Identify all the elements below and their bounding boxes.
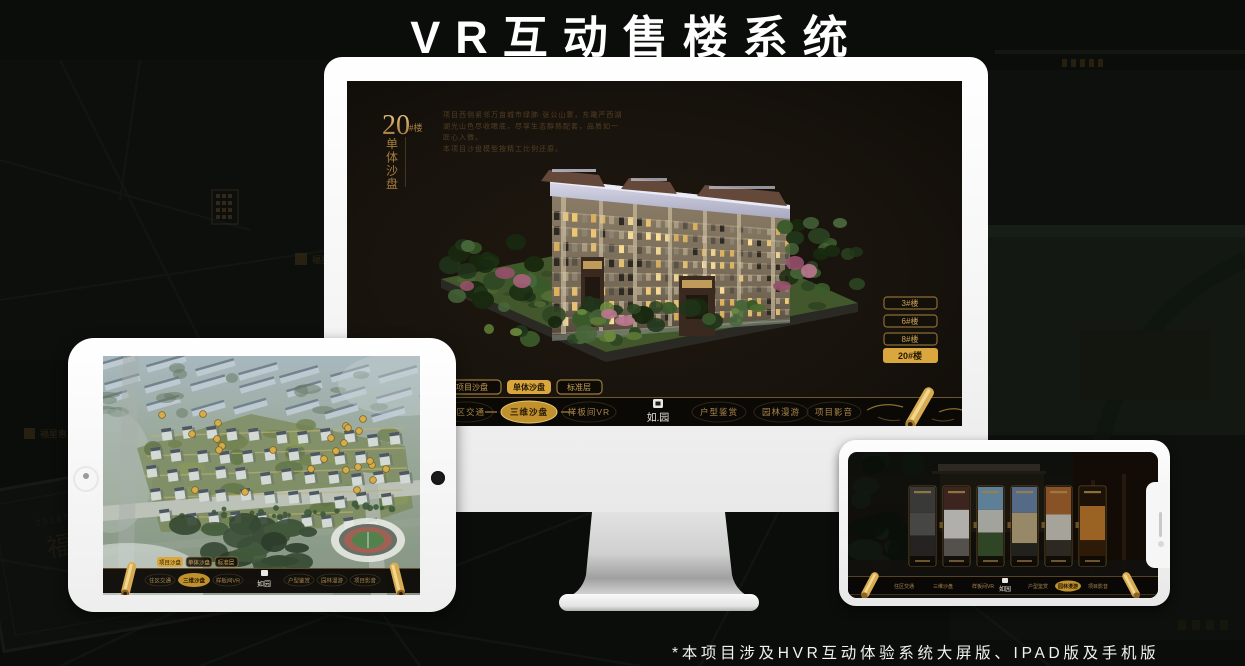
svg-text:园林漫游: 园林漫游 <box>321 577 344 585</box>
svg-text:住区交通: 住区交通 <box>149 577 172 585</box>
svg-text:样板间VR: 样板间VR <box>972 583 994 590</box>
svg-text:项目西侧紧邻万亩城市绿肺·张公山寨，东瞰严西湖: 项目西侧紧邻万亩城市绿肺·张公山寨，东瞰严西湖 <box>443 110 622 119</box>
svg-text:标准层: 标准层 <box>218 559 235 567</box>
svg-text:沙: 沙 <box>386 164 398 178</box>
svg-text:园林漫游: 园林漫游 <box>1058 583 1078 590</box>
svg-text:项目影音: 项目影音 <box>1088 583 1108 590</box>
svg-text:户型鉴赏: 户型鉴赏 <box>288 577 311 585</box>
svg-text:#楼: #楼 <box>409 122 423 133</box>
svg-text:三维沙盘: 三维沙盘 <box>933 583 953 590</box>
svg-text:体: 体 <box>386 150 398 164</box>
svg-text:单体沙盘: 单体沙盘 <box>513 382 545 392</box>
svg-text:项目影音: 项目影音 <box>815 407 853 417</box>
svg-text:6#楼: 6#楼 <box>902 316 919 326</box>
svg-text:单: 单 <box>386 137 398 151</box>
svg-text:标准层: 标准层 <box>567 382 591 392</box>
svg-text:户型鉴赏: 户型鉴赏 <box>700 407 738 417</box>
svg-text:如园: 如园 <box>999 585 1011 593</box>
svg-text:项目沙盘: 项目沙盘 <box>456 382 488 392</box>
svg-text:户型鉴赏: 户型鉴赏 <box>1028 583 1048 590</box>
svg-text:三维沙盘: 三维沙盘 <box>510 407 548 417</box>
svg-text:本项目沙盘模型按精工比例还原。: 本项目沙盘模型按精工比例还原。 <box>443 144 563 153</box>
svg-text:盘: 盘 <box>386 176 398 191</box>
svg-text:样板间VR: 样板间VR <box>216 577 240 585</box>
svg-text:匠心入微。: 匠心入微。 <box>443 133 483 142</box>
svg-text:如.园: 如.园 <box>647 411 670 424</box>
svg-text:3#楼: 3#楼 <box>902 298 919 308</box>
svg-text:住区交通: 住区交通 <box>894 583 914 590</box>
svg-text:8#楼: 8#楼 <box>902 334 919 344</box>
svg-text:样板间VR: 样板间VR <box>568 407 610 417</box>
svg-text:单体沙盘: 单体沙盘 <box>188 559 211 567</box>
svg-text:项目影音: 项目影音 <box>354 577 377 585</box>
svg-text:三维沙盘: 三维沙盘 <box>183 577 206 585</box>
svg-text:20#楼: 20#楼 <box>898 350 922 361</box>
svg-text:湖光山色尽收眼底，尽享生态醇熟配套，品质如一: 湖光山色尽收眼底，尽享生态醇熟配套，品质如一 <box>443 121 619 130</box>
svg-text:项目沙盘: 项目沙盘 <box>159 559 182 567</box>
svg-text:园林漫游: 园林漫游 <box>762 407 800 417</box>
svg-text:如园: 如园 <box>257 579 271 588</box>
